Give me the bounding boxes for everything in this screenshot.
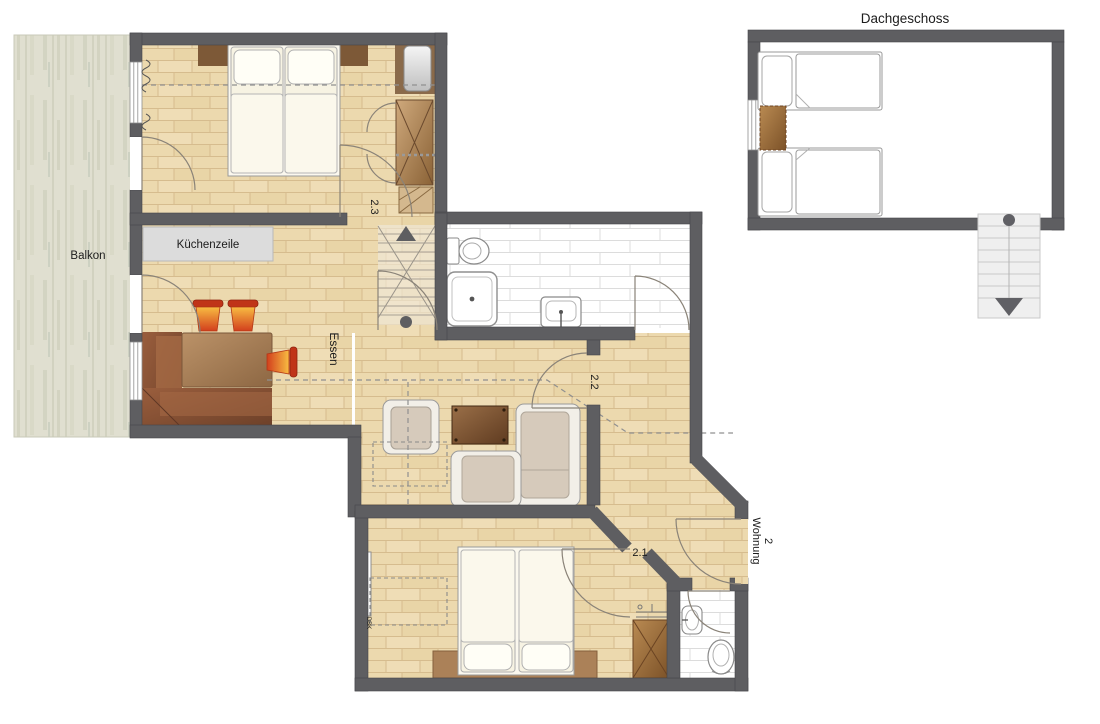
armchair <box>383 400 439 454</box>
stairs-attic <box>978 214 1040 318</box>
stairs-newel-dot-icon <box>400 316 412 328</box>
single-bed <box>758 148 882 216</box>
single-bed <box>758 52 882 110</box>
entrance-opening <box>735 519 748 584</box>
floor-plan-canvas: Dachgeschoss Balkon Küchenzeile Essen 2.… <box>0 0 1100 724</box>
stairs <box>378 225 435 328</box>
window <box>130 342 142 400</box>
tv-board <box>452 406 508 444</box>
apartment-label: Wohnung <box>750 518 762 565</box>
attic-label: Dachgeschoss <box>861 11 950 26</box>
toilet <box>447 238 489 264</box>
double-bed <box>228 44 340 176</box>
dining-label: Essen <box>327 332 341 365</box>
washing-machine <box>404 46 431 91</box>
apartment-number-label: 2 <box>762 538 774 544</box>
floor-plan: Dachgeschoss Balkon Küchenzeile Essen 2.… <box>0 0 1100 724</box>
door-opening <box>130 137 142 190</box>
shelf <box>399 187 433 213</box>
wardrobe <box>633 620 669 678</box>
balcony-area <box>14 35 135 437</box>
double-bed <box>458 547 574 675</box>
attic-unit <box>748 30 1064 318</box>
room-2-1-label: 2.1 <box>632 547 647 559</box>
toilet <box>708 640 734 674</box>
room-2-2-label: 2.2 <box>588 374 600 389</box>
room-2-3-label: 2.3 <box>368 199 380 214</box>
door-opening <box>130 275 142 333</box>
washbasin <box>541 297 581 327</box>
window <box>130 62 142 123</box>
stairs-newel-dot-icon <box>1003 214 1015 226</box>
wardrobe <box>396 100 433 185</box>
kitchenette-label: Küchenzeile <box>177 239 240 251</box>
dining-table <box>182 333 272 387</box>
balcony-label: Balkon <box>70 250 105 262</box>
radiator-tag-label: DBK <box>365 617 371 629</box>
shower <box>447 272 497 326</box>
dresser <box>760 106 786 150</box>
